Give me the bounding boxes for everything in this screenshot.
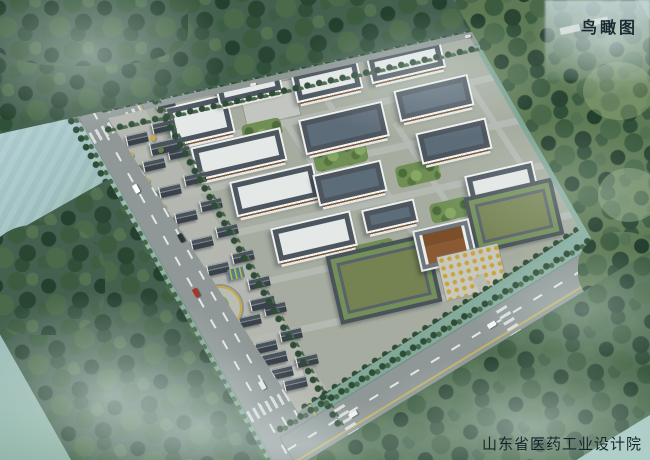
roof-panel [321, 168, 380, 198]
mist [470, 240, 650, 380]
roof-panel [278, 219, 349, 256]
tree [158, 147, 164, 153]
view-title-label: 鸟瞰图 [581, 14, 638, 38]
roof-panel [369, 207, 410, 226]
mist [0, 0, 230, 140]
mist [430, 120, 650, 260]
roof-panel [237, 171, 312, 209]
design-institute-credit: 山东省医药工业设计院 [482, 433, 642, 454]
aerial-rendering: 鸟瞰图 山东省医药工业设计院 [0, 0, 650, 460]
mist [150, 400, 470, 460]
